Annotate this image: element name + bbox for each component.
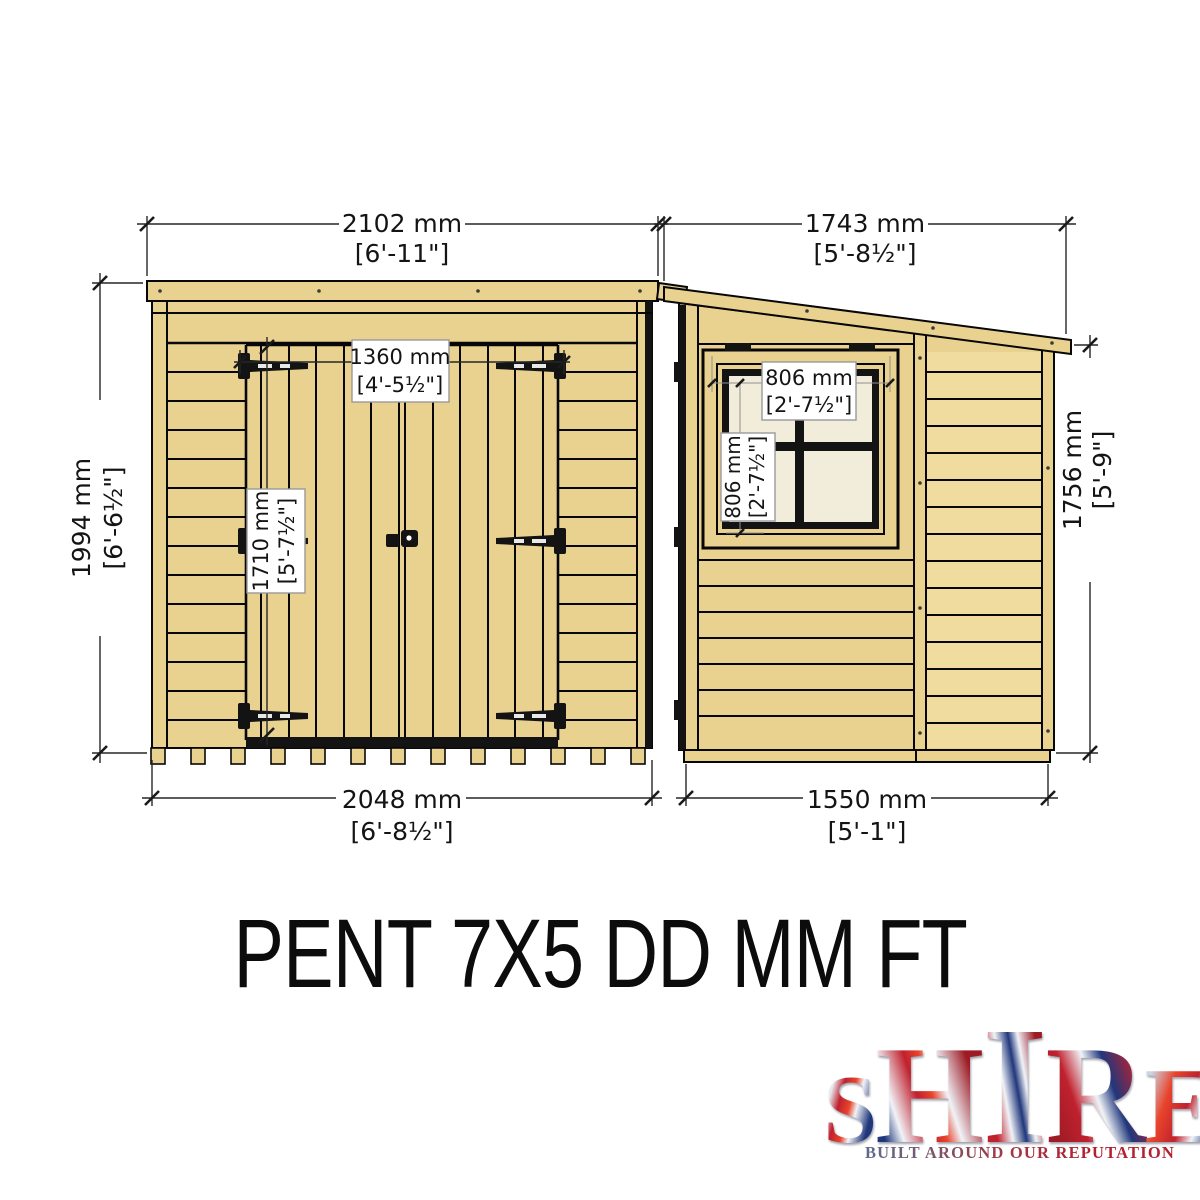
- side-overall-depth-ft: [5'-8½"]: [814, 239, 917, 268]
- elevation-drawing: 2102 mm [6'-11"] 1994 mm [6'-6½"] 2048 m…: [0, 0, 1200, 880]
- logo-letter-i: I: [982, 1002, 1047, 1170]
- front-roof-cap: [147, 281, 658, 301]
- logo-letter-s: S: [823, 1061, 877, 1158]
- front-dim-base-width: 2048 mm [6'-8½"]: [142, 760, 662, 846]
- shire-logo-word: S H I R E: [862, 1002, 1178, 1140]
- logo-letter-r: R: [1046, 1026, 1147, 1166]
- side-overall-depth-mm: 1743 mm: [805, 209, 925, 238]
- page-title: PENT 7X5 DD MM FT: [233, 898, 967, 1010]
- logo-letter-e: E: [1145, 1053, 1200, 1161]
- logo-letter-h: H: [875, 1026, 984, 1166]
- front-dim-overall-width: 2102 mm [6'-11"]: [137, 206, 668, 276]
- side-base-depth-mm: 1550 mm: [807, 785, 927, 814]
- front-overall-height-ft: [6'-6½"]: [99, 467, 128, 570]
- front-overall-height-mm: 1994 mm: [67, 458, 96, 578]
- shire-logo: S H I R E BUILT AROUND OUR REPUTATION: [862, 1002, 1178, 1163]
- shed-dimension-diagram: 2102 mm [6'-11"] 1994 mm [6'-6½"] 2048 m…: [0, 0, 1200, 1200]
- side-eaves-height-mm: 1756 mm: [1058, 410, 1087, 530]
- side-floor: [684, 750, 1050, 762]
- front-overall-width-mm: 2102 mm: [342, 209, 462, 238]
- window-width-mm: 806 mm: [765, 366, 853, 390]
- front-base-width-mm: 2048 mm: [342, 785, 462, 814]
- front-dim-overall-height: 1994 mm [6'-6½"]: [66, 273, 147, 763]
- side-view: [657, 283, 1071, 762]
- window-height-ft: [2'-7½"]: [745, 436, 769, 518]
- side-base-depth-ft: [5'-1"]: [828, 817, 907, 846]
- side-eaves-height-ft: [5'-9"]: [1088, 431, 1117, 510]
- side-dim-eaves-height: 1756 mm [5'-9"]: [1056, 335, 1118, 763]
- window-height-mm: 806 mm: [721, 435, 745, 519]
- window-width-ft: [2'-7½"]: [766, 393, 852, 417]
- door-width-ft: [4'-5½"]: [357, 373, 443, 397]
- front-feet: [151, 748, 645, 764]
- door-width-mm: 1360 mm: [349, 345, 450, 369]
- front-overall-width-ft: [6'-11"]: [355, 239, 450, 268]
- side-dim-base-depth: 1550 mm [5'-1"]: [676, 764, 1058, 846]
- door-height-ft: [5'-7½"]: [275, 498, 299, 584]
- door-height-mm: 1710 mm: [249, 490, 273, 591]
- front-base-width-ft: [6'-8½"]: [351, 817, 454, 846]
